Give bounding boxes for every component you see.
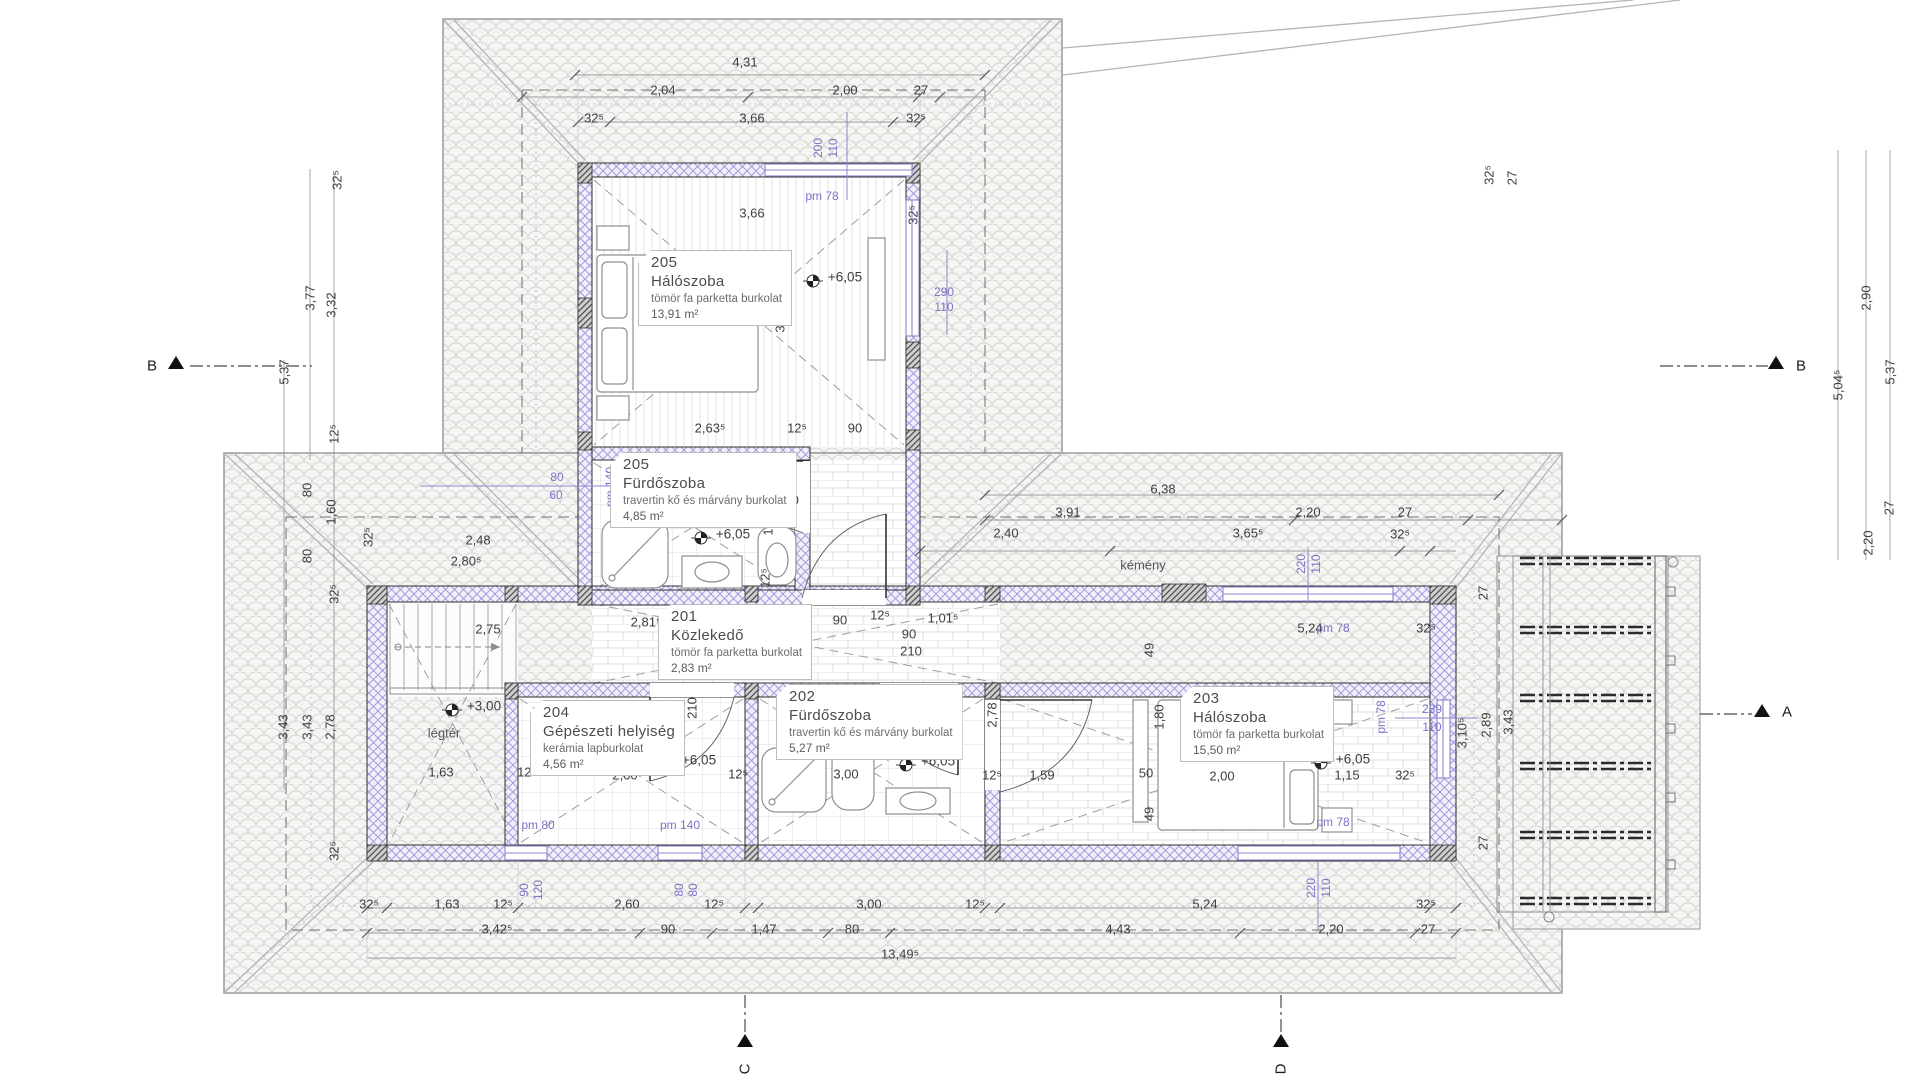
- dimension-label: 3,42⁵: [482, 923, 513, 936]
- room-finish: kerámia lapburkolat: [543, 743, 675, 755]
- room-area: 13,91 m²: [651, 307, 782, 321]
- dimension-label: 3,66: [739, 112, 764, 125]
- room-card-203-5: 203Hálószobatömör fa parketta burkolat15…: [1180, 686, 1334, 762]
- dimension-label: 32⁵: [331, 170, 344, 190]
- dimension-label: 27: [1477, 586, 1490, 600]
- dimension-label: 27: [1883, 501, 1896, 515]
- dimension-label: 2,60: [614, 898, 639, 911]
- room-num: 204: [543, 704, 675, 721]
- dimension-label: 1,63: [434, 898, 459, 911]
- window-size-label: 110: [827, 138, 839, 157]
- room-area: 15,50 m²: [1193, 743, 1324, 757]
- dimension-label: 2,00: [832, 84, 857, 97]
- dimension-label: 2,20: [1862, 530, 1875, 555]
- dimension-label: 3,00: [833, 768, 858, 781]
- dimension-label: 2,78: [324, 714, 337, 739]
- dimension-label: 12⁵: [728, 768, 748, 781]
- dimension-label: 32⁵: [328, 584, 341, 604]
- room-num: 201: [671, 608, 802, 625]
- room-num: 202: [789, 688, 953, 705]
- dimension-label: 2,78: [986, 702, 999, 727]
- room-finish: travertin kő és márvány burkolat: [623, 495, 787, 507]
- dimension-label: 80: [845, 923, 859, 936]
- dimension-label: 32⁵: [1416, 622, 1436, 635]
- dimension-label: 4,31: [732, 56, 757, 69]
- room-num: 203: [1193, 690, 1324, 707]
- dimension-label: 1,60: [325, 499, 338, 524]
- window-size-label: 289: [1422, 703, 1442, 715]
- window-size-label: pm 78: [805, 190, 838, 202]
- dimension-label: 27: [914, 84, 928, 97]
- dimension-label: 3,43: [277, 714, 290, 739]
- window-size-label: 80: [673, 883, 685, 896]
- dimension-label: 4,43: [1105, 923, 1130, 936]
- section-letter: B: [147, 359, 157, 374]
- dimension-label: 13,49⁵: [881, 948, 919, 961]
- dimension-label: 2,20: [1318, 923, 1343, 936]
- dimension-label: 5,24: [1192, 898, 1217, 911]
- dimension-label: 32⁵: [907, 205, 920, 225]
- dimension-label: 2,00: [1209, 770, 1234, 783]
- level-label: +6,05: [828, 270, 862, 284]
- room-card-204-3: 204Gépészeti helyiségkerámia lapburkolat…: [530, 700, 685, 776]
- window-size-label: 220: [1305, 878, 1317, 898]
- dimension-label: 90: [833, 614, 847, 627]
- dimension-label: 3,65⁵: [1233, 527, 1264, 540]
- floorplan-canvas: 4,312,042,002732⁵3,6632⁵3,6632⁵3,322,63⁵…: [0, 0, 1920, 1080]
- window-size-label: 220: [1295, 554, 1307, 574]
- annotation-label: kémény: [1120, 559, 1166, 572]
- window-size-label: 80: [687, 883, 699, 896]
- dimension-label: 2,81⁵: [631, 616, 662, 629]
- dimension-label: 2,80⁵: [451, 555, 482, 568]
- dimension-label: 12⁵: [965, 898, 985, 911]
- window-size-label: 90: [518, 883, 530, 896]
- room-card-205-1: 205Fürdőszobatravertin kő és márvány bur…: [610, 452, 797, 528]
- level-label: +3,00: [467, 699, 501, 713]
- dimension-label: 50: [1139, 767, 1153, 780]
- dimension-label: 3,77: [304, 285, 317, 310]
- room-finish: travertin kő és márvány burkolat: [789, 727, 953, 739]
- window-size-label: 110: [1320, 878, 1332, 897]
- dimension-label: 49: [1143, 807, 1156, 821]
- window-size-label: pm 78: [1316, 622, 1349, 634]
- window-size-label: pm 78: [1316, 816, 1349, 828]
- room-name: Közlekedő: [671, 627, 802, 644]
- dimension-label: 3,10⁵: [1456, 718, 1469, 749]
- room-num: 205: [623, 456, 787, 473]
- dimension-label: 32⁵: [1390, 528, 1410, 541]
- dimension-label: 12⁵: [982, 769, 1002, 782]
- window-size-label: 110: [1422, 721, 1441, 733]
- dimension-label: 90: [661, 923, 675, 936]
- dimension-label: 1,80: [1153, 704, 1166, 729]
- dimension-label: 5,37: [1884, 359, 1897, 384]
- dimension-label: 2,89: [1480, 712, 1493, 737]
- dimension-label: 210: [900, 645, 922, 658]
- window-size-label: 120: [532, 880, 544, 900]
- section-letter: A: [1782, 705, 1792, 720]
- dimension-label: 2,63⁵: [695, 422, 726, 435]
- room-area: 4,56 m²: [543, 757, 675, 771]
- level-label: +6,05: [682, 753, 716, 767]
- window-size-label: 60: [549, 489, 562, 501]
- dimension-label: 2,40: [993, 527, 1018, 540]
- room-num: 205: [651, 254, 782, 271]
- dimension-label: 32⁵: [328, 841, 341, 861]
- room-card-205-0: 205Hálószobatömör fa parketta burkolat13…: [638, 250, 792, 326]
- window-size-label: pm 78: [1375, 700, 1387, 733]
- dimension-label: 90: [902, 628, 916, 641]
- dimension-label: 49: [1143, 643, 1156, 657]
- window-size-label: 200: [812, 138, 824, 158]
- dimension-label: 1,59: [1029, 769, 1054, 782]
- annotation-label: légtér: [428, 727, 461, 740]
- window-size-label: 110: [934, 301, 953, 313]
- dimension-label: 6,38: [1150, 483, 1175, 496]
- room-name: Fürdőszoba: [623, 475, 787, 492]
- section-letter: D: [1274, 1064, 1289, 1075]
- label-layer: 4,312,042,002732⁵3,6632⁵3,6632⁵3,322,63⁵…: [0, 0, 1920, 1080]
- room-name: Hálószoba: [1193, 709, 1324, 726]
- dimension-label: 32⁵: [906, 112, 926, 125]
- room-card-201-2: 201Közlekedőtömör fa parketta burkolat2,…: [658, 604, 812, 680]
- window-size-label: pm 140: [660, 819, 700, 831]
- dimension-label: 80: [301, 549, 314, 563]
- room-area: 4,85 m²: [623, 509, 787, 523]
- dimension-label: 32⁵: [584, 112, 604, 125]
- room-finish: tömör fa parketta burkolat: [671, 647, 802, 659]
- dimension-label: 3,43: [301, 714, 314, 739]
- dimension-label: 12⁵: [870, 609, 890, 622]
- dimension-label: 5,37: [278, 359, 291, 384]
- dimension-label: 32⁵: [1416, 898, 1436, 911]
- section-letter: C: [738, 1064, 753, 1075]
- dimension-label: 12⁵: [704, 898, 724, 911]
- window-size-label: pm 80: [521, 819, 554, 831]
- dimension-label: 27: [1398, 506, 1412, 519]
- dimension-label: 27: [1506, 171, 1519, 185]
- dimension-label: 12⁵: [328, 424, 341, 444]
- room-area: 2,83 m²: [671, 661, 802, 675]
- window-size-label: 290: [934, 286, 954, 298]
- section-letter: B: [1796, 359, 1806, 374]
- room-card-202-4: 202Fürdőszobatravertin kő és márvány bur…: [776, 684, 963, 760]
- room-finish: tömör fa parketta burkolat: [1193, 729, 1324, 741]
- dimension-label: 2,20: [1295, 506, 1320, 519]
- dimension-label: 2,04: [650, 84, 675, 97]
- dimension-label: 2,90: [1860, 285, 1873, 310]
- dimension-label: 80: [301, 483, 314, 497]
- dimension-label: 3,00: [856, 898, 881, 911]
- dimension-label: 3,91: [1055, 506, 1080, 519]
- room-name: Hálószoba: [651, 273, 782, 290]
- dimension-label: 1,63: [428, 766, 453, 779]
- dimension-label: 32⁵: [359, 898, 379, 911]
- room-name: Fürdőszoba: [789, 707, 953, 724]
- dimension-label: 32⁵: [1483, 165, 1496, 185]
- room-finish: tömör fa parketta burkolat: [651, 293, 782, 305]
- room-name: Gépészeti helyiség: [543, 723, 675, 740]
- dimension-label: 2,75: [475, 623, 500, 636]
- dimension-label: 12⁵: [493, 898, 513, 911]
- dimension-label: 2,48: [465, 534, 490, 547]
- dimension-label: 90: [848, 422, 862, 435]
- dimension-label: 12⁵: [787, 422, 807, 435]
- room-area: 5,27 m²: [789, 741, 953, 755]
- dimension-label: 32⁵: [1395, 769, 1415, 782]
- dimension-label: 32⁵: [362, 527, 375, 547]
- dimension-label: 3,66: [739, 207, 764, 220]
- dimension-label: 12⁵: [759, 568, 772, 588]
- level-label: +6,05: [1336, 752, 1370, 766]
- level-label: +6,05: [716, 527, 750, 541]
- dimension-label: 1,15: [1334, 769, 1359, 782]
- dimension-label: 5,04⁵: [1832, 370, 1845, 401]
- dimension-label: 27: [1477, 836, 1490, 850]
- dimension-label: 1,01⁵: [928, 612, 959, 625]
- dimension-label: 3,43: [1502, 709, 1515, 734]
- window-size-label: 110: [1310, 554, 1322, 573]
- dimension-label: 27: [1421, 923, 1435, 936]
- window-size-label: 80: [550, 471, 563, 483]
- dimension-label: 3,32: [325, 292, 338, 317]
- dimension-label: 1,47: [751, 923, 776, 936]
- dimension-label: 210: [686, 697, 699, 719]
